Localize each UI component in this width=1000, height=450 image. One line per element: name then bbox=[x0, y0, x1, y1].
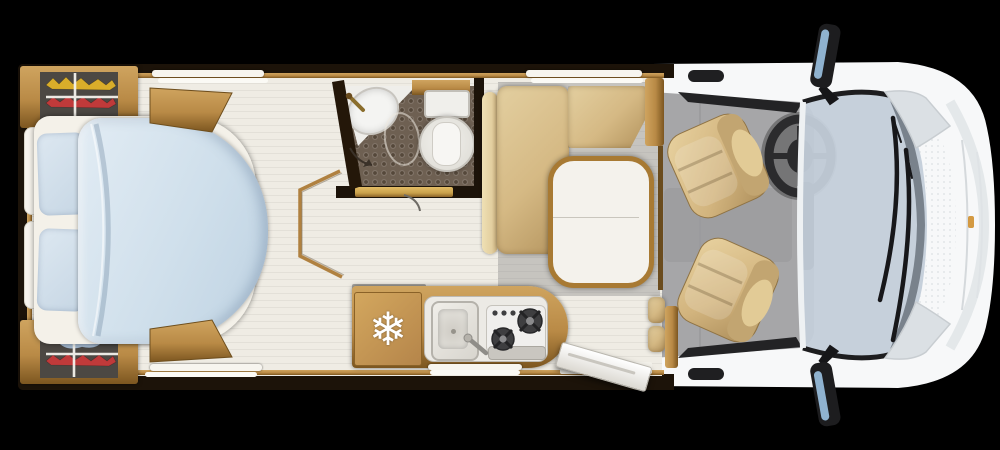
window-bedroom-bottom bbox=[150, 364, 262, 371]
table-leaf-seam bbox=[553, 217, 639, 218]
window-bedroom-top-sill bbox=[158, 78, 268, 83]
a-pillar-left bbox=[800, 102, 803, 348]
hob-drip-tray bbox=[488, 346, 546, 360]
cab-partition-wall bbox=[658, 146, 663, 290]
window-bedroom-bottom-sill bbox=[145, 372, 257, 377]
fridge-snowflake-icon: ❄ bbox=[355, 293, 421, 365]
window-dinette-top bbox=[526, 70, 642, 77]
roof-vent-bottom bbox=[688, 368, 724, 380]
entrance-armrest-1 bbox=[648, 297, 665, 323]
floorplan-stage: ❄ bbox=[0, 0, 1000, 450]
entrance-armrest-2 bbox=[648, 326, 665, 352]
dinette-back-bolster bbox=[482, 92, 498, 254]
toilet-tank bbox=[424, 90, 470, 118]
sink-drain bbox=[451, 329, 456, 334]
bathroom-door bbox=[355, 187, 453, 197]
entrance-panel bbox=[665, 306, 678, 368]
window-bedroom-top bbox=[152, 70, 264, 77]
cab-and-front bbox=[640, 0, 1000, 450]
dinette-table bbox=[548, 156, 654, 288]
roof-vent-top bbox=[688, 70, 724, 82]
kitchen-service-hatch-sill bbox=[430, 370, 520, 375]
refrigerator: ❄ bbox=[354, 292, 422, 366]
window-dinette-top-sill bbox=[531, 78, 643, 83]
amber-marker bbox=[968, 216, 974, 228]
dinette-side-cabinet bbox=[645, 78, 664, 146]
dinette-bench-top bbox=[568, 86, 646, 148]
bathroom bbox=[332, 76, 484, 198]
toilet-seat bbox=[432, 122, 461, 166]
